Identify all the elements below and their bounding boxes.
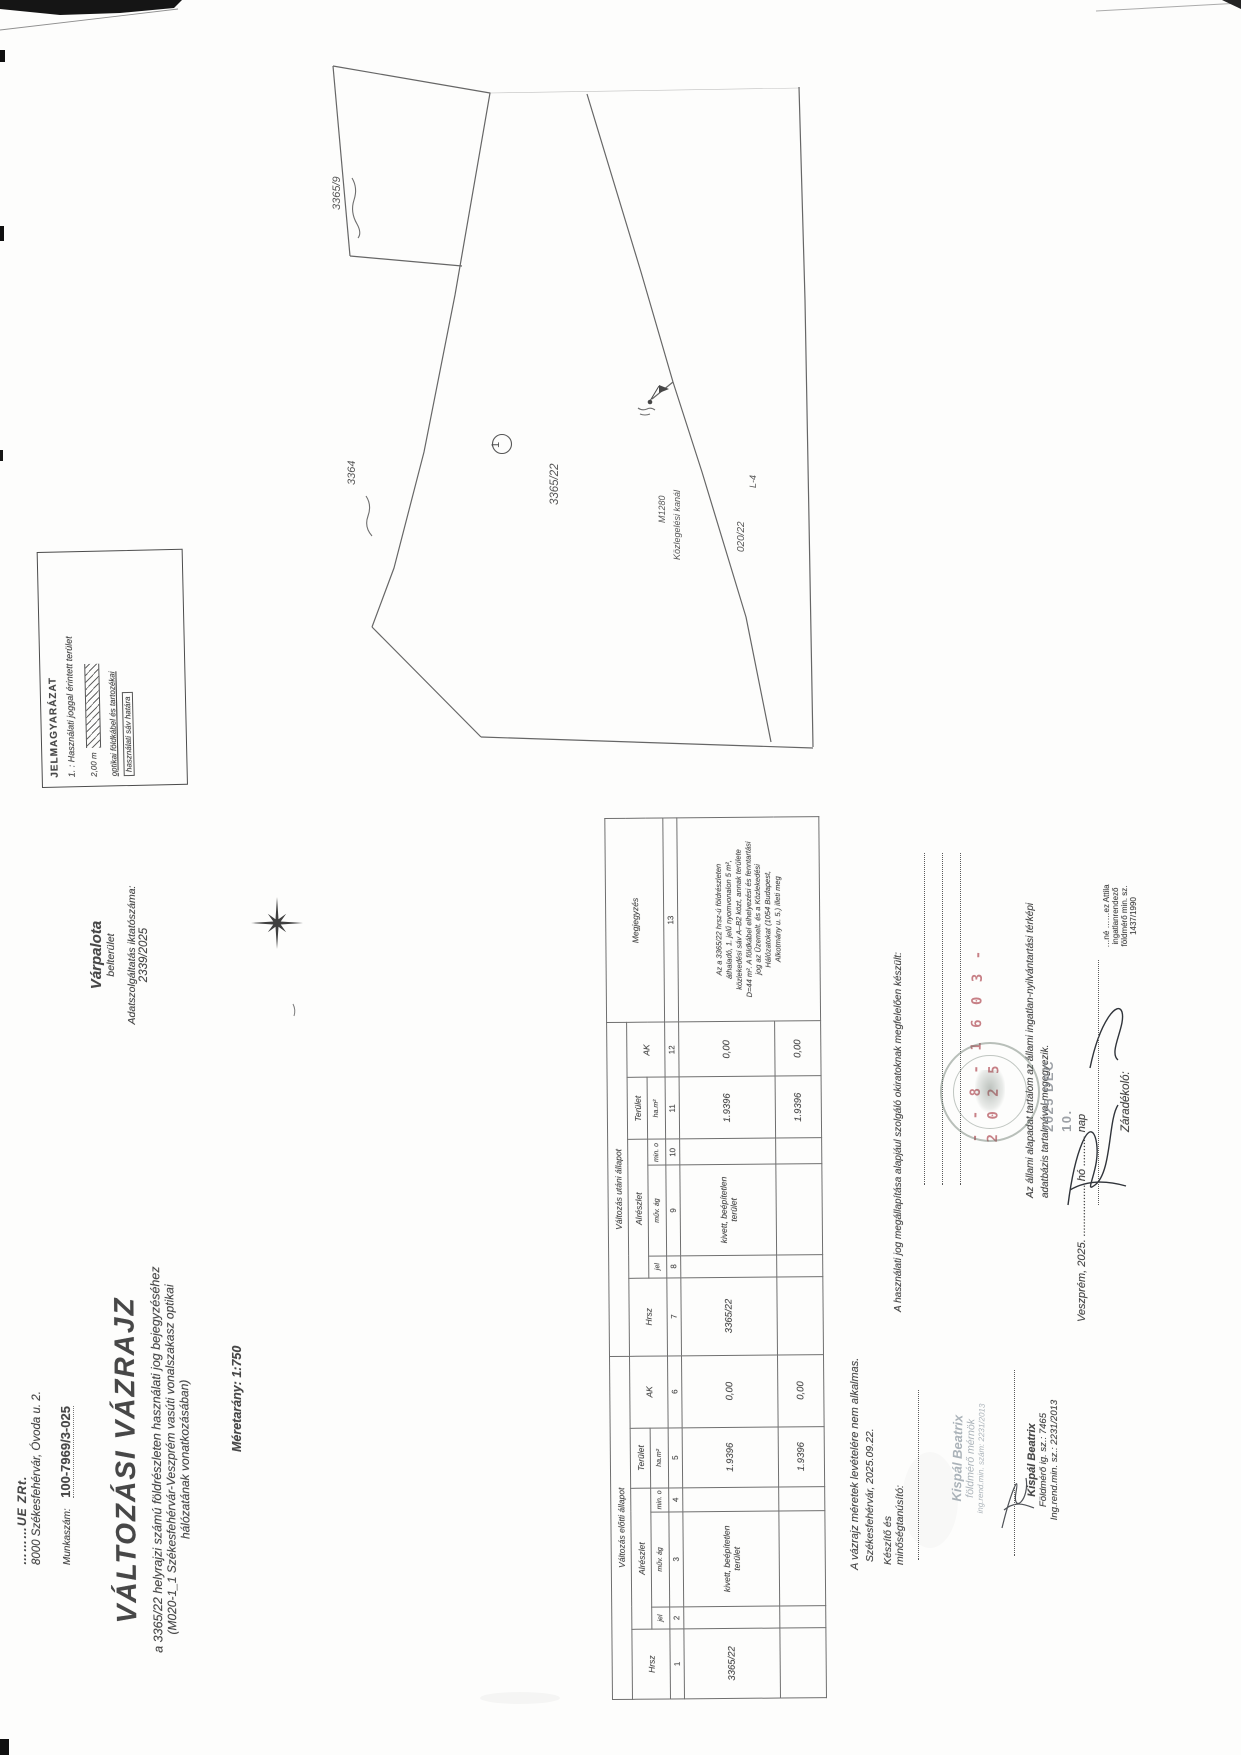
parcel-boundary-lines: [333, 66, 813, 748]
document-title: VÁLTOZÁSI VÁZRAJZ: [108, 1205, 144, 1715]
total-ak-before: 0,00: [777, 1354, 824, 1427]
parcel-label-3364: 3364: [346, 461, 358, 485]
total-empty: [780, 1628, 827, 1698]
total-empty: [776, 1164, 823, 1254]
column-number: 10: [666, 1139, 680, 1165]
dotted-line: [918, 1390, 919, 1560]
column-number: 2: [670, 1607, 684, 1629]
dotted-line: [942, 853, 943, 1185]
cable-marker-symbol: [648, 385, 669, 404]
settlement-name: Várpalota: [88, 845, 105, 1065]
column-header-ak-before: AK: [629, 1356, 668, 1428]
parcel-divider-line: [350, 256, 462, 266]
clerk-credentials-block: …né ……ez Attila ingatlanrendező földmérő…: [1102, 830, 1146, 1002]
map-bottom-line: [481, 737, 813, 748]
label-l4: L-4: [748, 475, 758, 488]
maker-city-date-text: Székesfehérvár, 2025.09.22.: [864, 1428, 876, 1562]
corner-line-artifact: [1096, 3, 1241, 11]
megjegyzes-line: Alkotmány u. 5.) illeti meg: [772, 818, 784, 1019]
place-block: Várpalota belterület Adatszolgáltatás ik…: [88, 845, 168, 1065]
legend-label-strip: használati sáv határa: [122, 692, 135, 776]
parcel-labels: 3365/9 3364 3365/22 M1280 Közlegelési ka…: [331, 176, 758, 560]
circled-parcel-number: 1: [490, 442, 502, 448]
map-top-faint-line: [490, 88, 800, 93]
column-number: 3: [669, 1512, 684, 1607]
official-round-stamp: [940, 1042, 1040, 1142]
maker-label-line-1: Készítő és: [882, 1389, 894, 1565]
parcel-boundary-west: [333, 66, 490, 627]
total-empty: [777, 1276, 824, 1354]
veszprem-date-text: Veszprém, 2025. ................. hó ...…: [1076, 1114, 1088, 1322]
tiny-annotation-scribble: [640, 414, 650, 415]
usage-right-statement-text: A használati jog megállapítása alapjául …: [893, 952, 904, 1312]
scale-block: Méretarány: 1:750: [228, 1300, 254, 1452]
subheader-mino-before: min. o: [651, 1488, 669, 1512]
column-number: 5: [668, 1428, 683, 1488]
column-header-alreszlet-before: Alrészlet: [631, 1488, 652, 1629]
edge-mark-artifact: [0, 226, 4, 241]
legend-box: JELMAGYARÁZAT 1. : Használati joggal éri…: [37, 549, 188, 788]
column-number: 7: [667, 1277, 682, 1355]
edge-mark-artifact: [0, 1739, 9, 1755]
total-empty: [780, 1606, 826, 1628]
surveyor-signature-line: [1014, 1370, 1022, 1556]
parcel-label-3365-22: 3365/22: [549, 463, 561, 505]
total-terulet-before: 1.9396: [778, 1426, 825, 1486]
surveyor-ink-stamp: Kispál Beatrix földmérő mérnök ing.rend.…: [948, 1360, 1009, 1557]
column-header-terulet-after: Terület: [627, 1078, 648, 1140]
data-service-number: 2339/2025: [138, 845, 150, 1065]
squiggle-under-3364: [366, 496, 372, 536]
cell-muvag-after: kivett, beépítetlen terület: [680, 1164, 777, 1255]
legend-hatch-symbol: [84, 663, 101, 747]
column-header-ak-after: AK: [627, 1022, 665, 1077]
dotted-line: [924, 853, 925, 1185]
parcel-boundary-south: [372, 627, 481, 737]
smudge-artifact: [480, 1692, 560, 1704]
column-header-alreszlet-after: Alrészlet: [628, 1140, 649, 1278]
parcel-label-020-22: 020/22: [736, 521, 747, 552]
column-number: 11: [665, 1077, 680, 1139]
total-empty: [779, 1486, 825, 1510]
label-kanal: Közlegelési kanál: [672, 489, 682, 560]
total-terulet-after: 1.9396: [775, 1076, 822, 1138]
column-number: 12: [665, 1022, 679, 1077]
north-compass-icon: [251, 897, 303, 949]
settlement-area: belterület: [105, 845, 117, 1065]
clerk-label-text: Záradékoló:: [1120, 1071, 1132, 1132]
column-number: 6: [667, 1355, 682, 1427]
scale-text: Méretarány: 1:750: [230, 1346, 244, 1452]
column-header-terulet-before: Terület: [630, 1428, 651, 1488]
total-empty: [777, 1254, 823, 1276]
corridor-line-east: [799, 87, 813, 747]
cell-terulet-before: 1.9396: [682, 1427, 779, 1488]
legend-item-1: 1. : Használati joggal érintett terület: [62, 561, 77, 777]
torn-edge-artifact: [0, 0, 182, 15]
edge-mark-artifact: [0, 450, 3, 461]
clerk-license-number: 1437/1990: [1129, 830, 1138, 1002]
worknumber-value: 100-7969/3-025: [58, 1406, 74, 1498]
clerk-name: …né ……ez Attila: [1102, 830, 1111, 1002]
cell-ak-before: 0,00: [681, 1355, 778, 1428]
maker-label-line-2: minőségtanúsító:: [894, 1389, 906, 1565]
company-header-block: ………UE ZRt. 8000 Székesfehérvár, Óvoda u.…: [15, 1235, 103, 1565]
dotted-line: [1098, 960, 1099, 1205]
cell-ak-after: 0,00: [679, 1021, 775, 1077]
parcel-label-3365-9: 3365/9: [331, 176, 343, 210]
state-base-data-line-1: Az állami alapadat tartalom az állami in…: [1025, 834, 1036, 1198]
date-stamp: 2025 DEC 10.: [1040, 1034, 1062, 1132]
clerk-license-label: földmérő min. sz.: [1120, 830, 1129, 1002]
legend-block: JELMAGYARÁZAT 1. : Használati joggal éri…: [37, 549, 190, 788]
cell-hrsz-after: 3365/22: [681, 1277, 778, 1356]
veszprem-date-line: Veszprém, 2025. ................. hó ...…: [1072, 1020, 1096, 1322]
label-m1280: M1280: [657, 495, 667, 523]
squiggle-under-3365-9: [352, 178, 360, 238]
tiny-annotation-scribble: [638, 408, 655, 410]
handwritten-squiggles: [352, 178, 655, 536]
column-number: 4: [669, 1488, 683, 1512]
usage-right-statement: A használati jog megállapítása alapjául …: [888, 900, 914, 1312]
marker-stem: [650, 386, 659, 401]
company-address: 8000 Székesfehérvár, Óvoda u. 2.: [31, 1235, 43, 1565]
subheader-ham2-before: ha.m²: [650, 1428, 669, 1488]
surveyor-id-number: Földmérő ig. sz.: 7465: [1038, 1360, 1049, 1560]
cell-megjegyzes: Az a 3365/22 hrsz-ú földrészleten áthala…: [677, 817, 821, 1023]
change-of-state-table: Változás előtti állapot Változás utáni á…: [604, 816, 827, 1700]
column-header-megjegyzes: Megjegyzés: [605, 818, 665, 1023]
corner-mark-artifact: [1222, 0, 1241, 9]
maker-signature-line: [918, 1390, 926, 1560]
subheader-jel-before: jel: [652, 1607, 670, 1629]
subheader-ham2-after: ha.m²: [647, 1077, 666, 1139]
dotted-line: [1014, 1370, 1015, 1556]
pen-mark-artifact: [293, 1004, 295, 1016]
total-ak-after: 0,00: [775, 1021, 821, 1076]
cell-terulet-after: 1.9396: [679, 1076, 776, 1139]
clerk-label: Záradékoló:: [1116, 1017, 1136, 1132]
clerk-role: ingatlanrendező: [1111, 830, 1120, 1002]
subheader-mino-after: min. o: [648, 1139, 666, 1165]
subheader-muvag-before: műv. ág: [651, 1512, 670, 1607]
parcel-boundary-segment: [333, 66, 350, 256]
surveyor-name: Kispál Beatrix: [1026, 1360, 1038, 1560]
cell-muvag-before: kivett, beépítetlen terület: [683, 1511, 780, 1607]
maker-label-block: Készítő és minőségtanúsító:: [882, 1389, 918, 1565]
column-header-hrsz-after: Hrsz: [629, 1278, 668, 1356]
company-name: ………UE ZRt.: [15, 1235, 29, 1565]
legend-title: JELMAGYARÁZAT: [45, 562, 61, 778]
total-empty: [776, 1138, 822, 1164]
dotted-line: [960, 853, 961, 1185]
subheader-muvag-after: műv. ág: [648, 1165, 667, 1255]
surveyor-printed-block: Kispál Beatrix Földmérő ig. sz.: 7465 In…: [1026, 1360, 1070, 1560]
column-header-hrsz-before: Hrsz: [632, 1629, 671, 1699]
corridor-line-west: [587, 94, 771, 742]
column-number: 1: [670, 1629, 685, 1699]
edge-mark-artifact: [0, 50, 5, 62]
column-number: 9: [666, 1165, 681, 1255]
legend-label-cable: optikai földkábel és tartozékai: [105, 560, 119, 776]
total-empty: [779, 1510, 826, 1605]
column-number: 8: [667, 1255, 681, 1277]
cell-jel-before: [684, 1606, 780, 1629]
cell-hrsz-before: 3365/22: [684, 1628, 781, 1699]
legend-measure: 2,00 m: [89, 752, 99, 777]
state-base-data-line-2: adatbázis tartalmával megegyezik.: [1040, 834, 1051, 1198]
surveyor-license-number: Ing.rend.min. sz.: 2231/2013: [1049, 1360, 1060, 1560]
state-base-data-statement: Az állami alapadat tartalom az állami in…: [1025, 834, 1071, 1198]
cadastral-table: Változás előtti állapot Változás utáni á…: [604, 816, 827, 1700]
cell-mino-after: [680, 1138, 776, 1165]
scanned-cadastral-sketch-page: { "company": { "name": "………UE ZRt.", "ad…: [0, 0, 1241, 1755]
worknumber-label: Munkaszám:: [62, 1508, 73, 1565]
document-title-block: VÁLTOZÁSI VÁZRAJZ a 3365/22 helyrajzi sz…: [108, 1204, 224, 1715]
subheader-jel-after: jel: [649, 1256, 667, 1278]
cell-jel-after: [681, 1255, 777, 1278]
maker-city-date: Székesfehérvár, 2025.09.22.: [860, 1380, 880, 1562]
cell-mino-before: [683, 1487, 779, 1512]
data-service-label: Adatszolgáltatás iktatószáma:: [126, 845, 138, 1065]
